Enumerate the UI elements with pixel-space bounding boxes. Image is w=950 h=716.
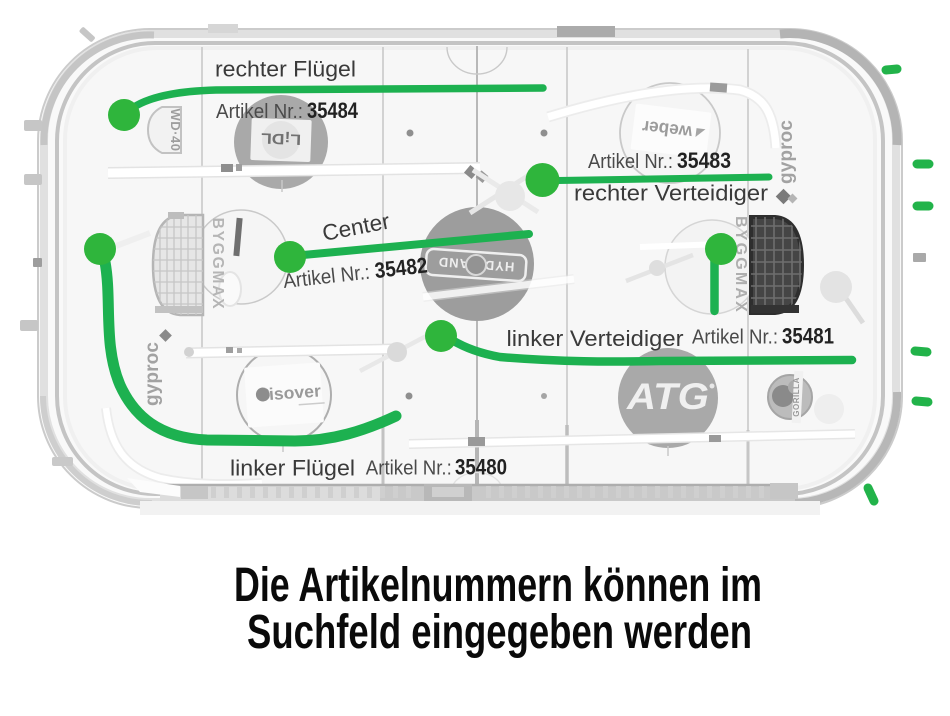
svg-text:35484: 35484	[307, 98, 359, 123]
svg-text:Artikel Nr.:: Artikel Nr.:	[692, 326, 778, 349]
svg-text:rechter Flügel: rechter Flügel	[215, 57, 356, 82]
svg-text:35480: 35480	[455, 455, 507, 480]
svg-text:Artikel Nr.:: Artikel Nr.:	[588, 150, 673, 173]
svg-text:Artikel Nr.:: Artikel Nr.:	[216, 100, 303, 123]
svg-text:isover: isover	[268, 381, 322, 404]
svg-text:BYGGMAX: BYGGMAX	[209, 218, 226, 311]
svg-text:GORILLA: GORILLA	[792, 377, 801, 417]
svg-text:Suchfeld eingegeben werden: Suchfeld eingegeben werden	[247, 606, 752, 659]
svg-text:rechter Verteidiger: rechter Verteidiger	[574, 181, 769, 206]
svg-text:BYGGMAX: BYGGMAX	[732, 216, 749, 314]
svg-text:linker Verteidiger: linker Verteidiger	[507, 326, 685, 351]
svg-text:35483: 35483	[677, 148, 731, 173]
svg-text:Artikel Nr.:: Artikel Nr.:	[366, 457, 452, 480]
svg-text:WD·40: WD·40	[168, 109, 183, 152]
svg-text:linker Flügel: linker Flügel	[230, 456, 355, 481]
svg-text:35481: 35481	[782, 324, 834, 349]
svg-text:Die Artikelnummern können im: Die Artikelnummern können im	[234, 559, 762, 612]
svg-text:gyproc: gyproc	[142, 342, 163, 406]
svg-text:ATG: ATG	[626, 376, 709, 417]
svg-text:L¡DL: L¡DL	[261, 129, 302, 147]
